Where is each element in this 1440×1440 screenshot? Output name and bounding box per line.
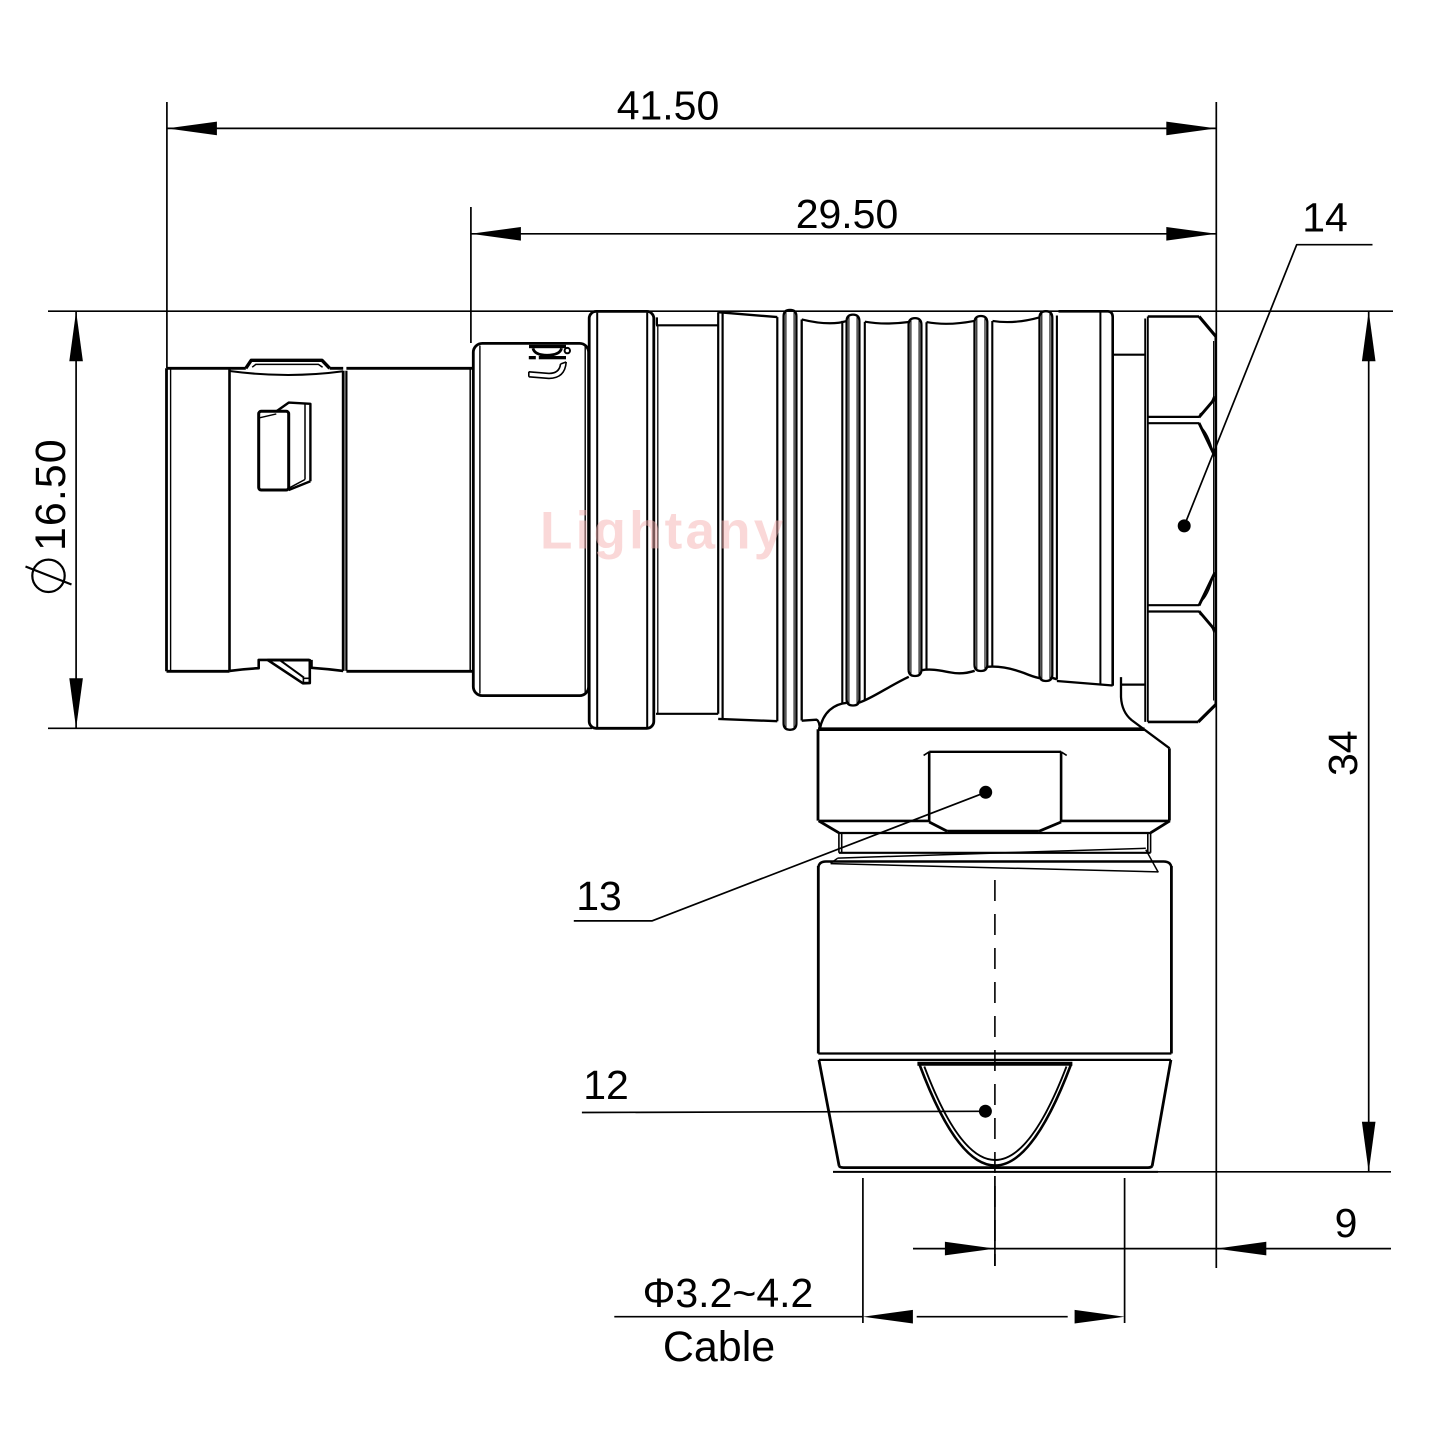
svg-text:13: 13 (576, 873, 622, 919)
svg-text:29.50: 29.50 (796, 191, 899, 237)
svg-text:Lightany: Lightany (540, 502, 786, 561)
svg-text:34: 34 (1320, 730, 1366, 776)
svg-text:12: 12 (583, 1062, 629, 1108)
svg-text:9: 9 (1335, 1200, 1358, 1246)
svg-text:14: 14 (1302, 195, 1348, 241)
svg-text:Φ3.2~4.2: Φ3.2~4.2 (643, 1270, 814, 1316)
svg-text:41.50: 41.50 (617, 83, 720, 129)
svg-text:Cable: Cable (663, 1323, 775, 1371)
svg-text:16.50: 16.50 (27, 438, 75, 551)
